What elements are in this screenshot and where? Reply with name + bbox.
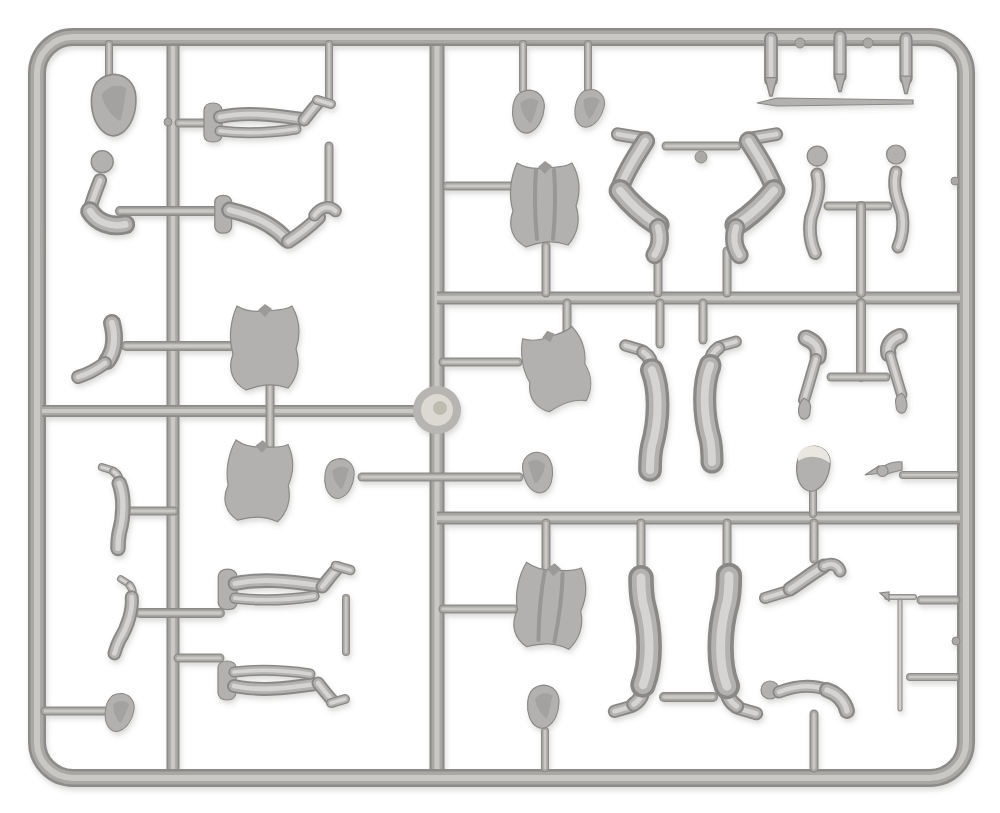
frame-nub-right-1: [951, 177, 959, 185]
frame-nub-top-2: [863, 38, 873, 48]
torso-jacket-lower-left: [223, 438, 295, 525]
thin-rod: [757, 98, 913, 106]
torso-vest-bottom: [511, 560, 588, 653]
bentlegs-bar-nub: [695, 151, 707, 163]
torso-vest: [510, 161, 579, 247]
sprue-photo: Gray plastic model-kit sprue with miniat…: [0, 0, 1000, 813]
sprue-photo-stage: Gray plastic model-kit sprue with miniat…: [0, 0, 1000, 813]
injection-disc: [413, 386, 461, 434]
torso-jacket-upper-left: [230, 304, 299, 390]
runner-nub-left: [164, 118, 172, 126]
frame-nub-top-1: [795, 38, 805, 48]
frame-nub-right-2: [952, 637, 960, 645]
